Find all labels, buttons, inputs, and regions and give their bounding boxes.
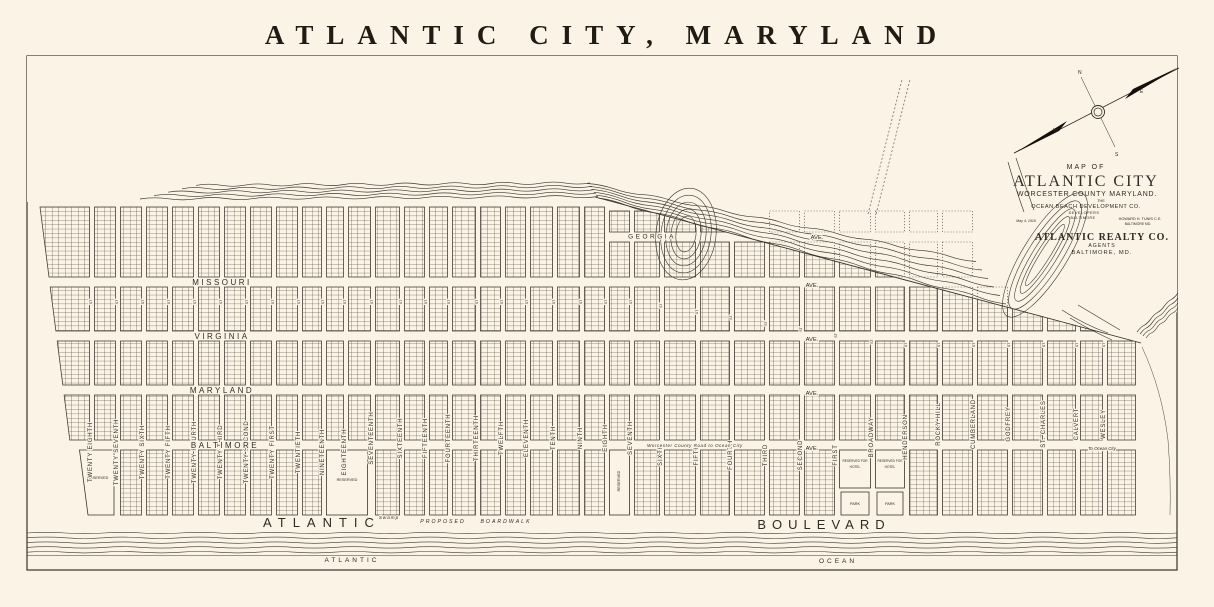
credit-map-of: MAP OF: [1067, 164, 1106, 171]
street-suffix-label: ST: [1102, 342, 1106, 347]
street-name-label: TWENTY SIXTH: [140, 425, 146, 479]
street-name-label: SIXTEENTH: [398, 418, 404, 459]
city-block: [277, 207, 298, 277]
city-block: [199, 450, 220, 515]
street-name-label: TENTH: [551, 426, 557, 450]
street-name-label: TWELFTH: [499, 421, 505, 455]
street-suffix-label: ST: [447, 299, 451, 304]
city-block: [1081, 341, 1103, 385]
city-block: [805, 341, 835, 385]
street-suffix-label: ST: [1075, 342, 1079, 347]
city-block: [251, 341, 272, 385]
beach-layer: [27, 532, 1177, 555]
beach-wave-line: [27, 552, 1177, 553]
city-block: [1108, 341, 1136, 385]
city-block: [303, 207, 322, 277]
city-block: [585, 341, 605, 385]
street-suffix-label: ST: [604, 299, 608, 304]
city-block: [665, 450, 696, 515]
city-block: [327, 287, 344, 331]
city-block: [735, 450, 765, 515]
street-suffix-label: ST: [115, 299, 119, 304]
city-block: [943, 341, 973, 385]
street-suffix-label: ST: [659, 303, 663, 308]
city-block: [277, 450, 298, 515]
street-suffix-label: ST: [972, 342, 976, 347]
street-name-label: BROADWAY: [869, 417, 875, 458]
city-block: [453, 207, 476, 277]
city-block: [64, 395, 89, 440]
city-block: [430, 341, 448, 385]
street-name-label: TWENTY FIRST: [270, 425, 276, 479]
city-block: [635, 395, 660, 440]
street-suffix-label: ST: [764, 320, 768, 325]
credit-company: OCEAN BEACH DEVELOPMENT CO.: [1031, 204, 1140, 210]
city-block: [147, 287, 168, 331]
city-block: [225, 207, 246, 277]
city-block: [453, 450, 476, 515]
street-name-label: EIGHTH: [603, 424, 609, 451]
street-name-label: SEVENTEENTH: [369, 411, 375, 464]
city-block: [585, 395, 605, 440]
street-suffix-label: ST: [525, 299, 529, 304]
city-block: [95, 341, 116, 385]
park-label: PARK: [850, 502, 861, 506]
proposed-label: PROPOSED: [420, 519, 465, 525]
city-block: [277, 341, 298, 385]
city-block: [95, 207, 116, 277]
city-block: [481, 450, 501, 515]
city-block: [481, 341, 501, 385]
street-suffix-label: ST: [424, 299, 428, 304]
city-block: [840, 341, 871, 385]
city-block: [701, 287, 730, 331]
city-block: [121, 341, 142, 385]
city-block: [147, 450, 168, 515]
city-block: [1013, 395, 1043, 440]
city-block: [173, 450, 194, 515]
city-block: [1081, 450, 1103, 515]
city-block: [978, 341, 1008, 385]
city-block: [349, 395, 371, 440]
city-block: [147, 341, 168, 385]
city-block: [430, 450, 448, 515]
compass-n: N: [1078, 70, 1082, 76]
hotel-reserved-label: RESERVED FOR: [842, 459, 868, 463]
city-block: [665, 287, 696, 331]
atlantic-boulevard-right-label: BOULEVARD: [757, 517, 890, 532]
credit-agent-city: BALTIMORE, MD.: [1072, 250, 1133, 256]
credit-company-city: BALTIMORE: [1070, 216, 1095, 220]
city-block: [531, 395, 553, 440]
city-block: [405, 341, 425, 385]
street-name-label: CUMBERLAND: [971, 399, 977, 449]
city-block: [876, 395, 905, 440]
city-block: [910, 450, 938, 515]
city-block: [1108, 450, 1136, 515]
beach-wave-line: [27, 542, 1177, 543]
city-block: [531, 207, 553, 277]
street-name-label: TWENTIETH: [296, 431, 302, 473]
city-block: [121, 395, 142, 440]
avenue-name-label: BALTIMORE: [191, 441, 259, 450]
city-block: [173, 207, 194, 277]
street-name-label: ST. CHARLES: [1041, 400, 1047, 447]
city-block: [558, 395, 580, 440]
street-suffix-label: ST: [141, 299, 145, 304]
city-block: [173, 287, 194, 331]
city-block: [225, 450, 246, 515]
city-block: [735, 341, 765, 385]
city-block: [327, 341, 344, 385]
reserved-block: [80, 450, 115, 515]
city-block: [701, 341, 730, 385]
city-block: [173, 395, 194, 440]
city-block: [735, 287, 765, 331]
street-suffix-label: ST: [245, 299, 249, 304]
city-block: [327, 207, 344, 277]
street-name-label: FIFTEENTH: [423, 418, 429, 458]
ocean-left-label: ATLANTIC: [325, 557, 380, 564]
city-block: [978, 395, 1008, 440]
city-block: [770, 450, 800, 515]
city-block: [701, 242, 730, 277]
street-name-label: THIRTEENTH: [474, 415, 480, 461]
city-block: [585, 207, 605, 277]
beach-wave-line: [27, 532, 1177, 533]
city-block: [805, 450, 835, 515]
city-block: [405, 287, 425, 331]
credit-county: WORCESTER COUNTY MARYLAND.: [1017, 191, 1157, 198]
park-label: PARK: [885, 502, 896, 506]
city-block: [635, 211, 660, 232]
city-block: [95, 395, 116, 440]
city-block: [840, 395, 871, 440]
city-block: [376, 450, 400, 515]
street-suffix-label: ST: [870, 338, 874, 343]
city-block: [303, 287, 322, 331]
city-block: [453, 341, 476, 385]
city-block: [121, 450, 142, 515]
avenue-suffix-label: AVE.: [806, 391, 819, 397]
credit-date: May 4, 1916: [1016, 219, 1036, 223]
reserved-label: RESERVED: [617, 470, 621, 491]
city-block: [1048, 341, 1076, 385]
avenue-suffix-label: AVE.: [806, 446, 819, 452]
street-name-label: WESLEY: [1101, 409, 1107, 439]
city-block: [665, 242, 696, 277]
street-suffix-label: ST: [193, 299, 197, 304]
avenue-name-label: MARYLAND: [190, 386, 254, 395]
city-block: [349, 341, 371, 385]
street-suffix-label: ST: [1042, 342, 1046, 347]
city-block: [770, 287, 800, 331]
street-suffix-label: ST: [271, 299, 275, 304]
city-block: [876, 287, 905, 331]
compass-w: W: [1053, 128, 1058, 134]
street-suffix-label: ST: [799, 326, 803, 331]
city-block: [199, 287, 220, 331]
city-block: [558, 341, 580, 385]
hotel-label: HOTEL: [850, 465, 861, 469]
street-name-label: TWENTY THIRD: [218, 425, 224, 480]
city-block: [327, 395, 344, 440]
city-block: [610, 395, 630, 440]
city-block: [225, 341, 246, 385]
ocean-right-label: OCEAN: [819, 558, 857, 565]
city-block: [1048, 395, 1076, 440]
street-suffix-label: ST: [834, 332, 838, 337]
city-block: [376, 395, 400, 440]
city-block: [610, 287, 630, 331]
street-suffix-label: ST: [579, 299, 583, 304]
street-name-label: GODFREY: [1006, 406, 1012, 441]
city-block: [251, 395, 272, 440]
city-block: [610, 211, 630, 232]
city-block: [50, 287, 89, 331]
city-block: [1013, 450, 1043, 515]
street-name-label: CALVERT: [1074, 408, 1080, 441]
avenue-suffix-label: AVE.: [811, 235, 824, 241]
city-block: [506, 207, 526, 277]
street-name-label: ELEVENTH: [524, 419, 530, 457]
city-block: [376, 287, 400, 331]
city-block: [430, 207, 448, 277]
county-road-note: Worcester County Road to Ocean City: [647, 443, 743, 448]
city-block: [251, 207, 272, 277]
street-name-label: TWENTY FOURTH: [192, 421, 198, 483]
city-block: [943, 395, 973, 440]
street-suffix-label: ST: [475, 299, 479, 304]
city-block: [770, 395, 800, 440]
city-block: [199, 207, 220, 277]
street-suffix-label: ST: [399, 299, 403, 304]
street-name-label: TWENTY SECOND: [244, 421, 250, 484]
city-block: [430, 287, 448, 331]
street-name-label: NINETEENTH: [320, 429, 326, 475]
credit-the: THE: [1097, 199, 1105, 203]
city-block: [506, 341, 526, 385]
city-block: [585, 450, 605, 515]
city-block: [1048, 450, 1076, 515]
city-block: [251, 450, 272, 515]
city-block: [251, 287, 272, 331]
city-block: [303, 395, 322, 440]
city-block: [405, 207, 425, 277]
reserved-label: RESERVED: [337, 478, 358, 482]
credit-engineer-city: BALTIMORE MD.: [1125, 222, 1152, 226]
city-block: [405, 395, 425, 440]
street-suffix-label: ST: [343, 299, 347, 304]
credit-engineer: HOWARD H. TUNIS C.E.: [1119, 217, 1162, 221]
city-block: [531, 287, 553, 331]
city-block: [225, 395, 246, 440]
city-block: [376, 207, 400, 277]
city-block: [701, 450, 730, 515]
city-block: [173, 341, 194, 385]
city-block: [303, 341, 322, 385]
city-block: [147, 207, 168, 277]
street-suffix-label: ST: [219, 299, 223, 304]
city-block: [558, 450, 580, 515]
street-name-label: SECOND: [798, 440, 804, 470]
avenue-suffix-label: AVE.: [806, 337, 819, 343]
street-suffix-label: ST: [937, 342, 941, 347]
city-block: [453, 395, 476, 440]
avenue-name-label: MISSOURI: [192, 278, 252, 287]
street-suffix-label: ST: [321, 299, 325, 304]
street-suffix-label: ST: [629, 299, 633, 304]
city-block: [506, 395, 526, 440]
city-block: [635, 341, 660, 385]
map-sheet: ATLANTIC CITY, MARYLAND MAINLAND SINEPUX…: [0, 0, 1214, 607]
city-block: [735, 395, 765, 440]
street-suffix-label: ST: [89, 299, 93, 304]
city-block: [805, 287, 835, 331]
street-suffix-label: ST: [729, 314, 733, 319]
city-block: [770, 341, 800, 385]
street-suffix-label: ST: [167, 299, 171, 304]
street-name-label: FOURTEENTH: [446, 414, 452, 463]
city-block: [349, 207, 371, 277]
street-suffix-label: ST: [370, 299, 374, 304]
city-block: [610, 242, 630, 277]
city-block: [1081, 395, 1103, 440]
street-suffix-label: ST: [297, 299, 301, 304]
street-name-label: NINTH: [578, 427, 584, 449]
city-block: [665, 341, 696, 385]
city-block: [635, 450, 660, 515]
city-block: [665, 395, 696, 440]
city-block: [735, 242, 765, 277]
city-block: [506, 287, 526, 331]
street-name-label: TWENTY EIGHTH: [88, 422, 94, 482]
city-block: [303, 450, 322, 515]
map-canvas: MAINLAND SINEPUXENT BAY RESERVED FORHOTE…: [0, 0, 1214, 607]
street-name-label: TWENTY SEVENTH: [114, 419, 120, 485]
city-block: [585, 287, 605, 331]
boardwalk-label: BOARDWALK: [480, 519, 531, 525]
atlantic-boulevard-left-label: ATLANTIC: [263, 515, 381, 530]
city-block: [531, 341, 553, 385]
city-block: [531, 450, 553, 515]
reserved-block: [840, 450, 871, 488]
beach-wave-line: [27, 537, 1177, 538]
city-block: [121, 287, 142, 331]
city-block: [1013, 341, 1043, 385]
city-block: [1108, 395, 1136, 440]
city-block: [121, 207, 142, 277]
city-block: [840, 287, 871, 331]
city-block: [943, 450, 973, 515]
city-block: [430, 395, 448, 440]
street-name-label: HENDERSON: [903, 414, 909, 460]
street-name-label: EIGHTEENTH: [342, 429, 348, 476]
credit-developers: DEVELOPERS: [1069, 211, 1100, 215]
street-suffix-label: ST: [1007, 342, 1011, 347]
avenue-name-label: VIRGINIA: [194, 332, 249, 341]
city-block: [147, 395, 168, 440]
reserved-block: [876, 450, 905, 488]
street-name-label: SEVENTH: [628, 421, 634, 455]
city-block: [40, 207, 90, 277]
street-suffix-label: ST: [904, 342, 908, 347]
city-block: [199, 341, 220, 385]
city-block: [481, 287, 501, 331]
beach-wave-line: [27, 547, 1177, 548]
east-beach-edge: [1142, 347, 1170, 515]
compass-hub-outer: [1092, 106, 1105, 119]
city-block: [558, 287, 580, 331]
street-name-label: ROCKY HILL: [936, 402, 942, 446]
city-block: [910, 341, 938, 385]
city-block: [453, 287, 476, 331]
city-block: [701, 395, 730, 440]
city-block: [558, 207, 580, 277]
hotel-reserved-label: RESERVED FOR: [877, 459, 903, 463]
city-block: [876, 341, 905, 385]
city-block: [277, 395, 298, 440]
city-block: [349, 287, 371, 331]
city-block: [277, 287, 298, 331]
city-block: [635, 287, 660, 331]
street-name-label: FIRST: [833, 444, 839, 465]
street-suffix-label: ST: [552, 299, 556, 304]
city-block: [506, 450, 526, 515]
credit-agent: ATLANTIC REALTY CO.: [1035, 232, 1169, 243]
avenue-suffix-label: AVE.: [806, 283, 819, 289]
avenue-name-label: GEORGIA: [628, 234, 676, 241]
city-block: [199, 395, 220, 440]
city-block: [635, 242, 660, 277]
credit-city: ATLANTIC CITY: [1013, 173, 1159, 190]
street-name-label: THIRD: [763, 444, 769, 466]
city-block: [910, 287, 938, 331]
city-block: [57, 341, 89, 385]
credit-agents: AGENTS: [1088, 243, 1115, 249]
city-block: [376, 341, 400, 385]
city-block: [910, 395, 938, 440]
city-block: [978, 450, 1008, 515]
city-block: [610, 341, 630, 385]
street-suffix-label: ST: [695, 309, 699, 314]
city-block: [805, 395, 835, 440]
swamp-label: Swamp: [379, 515, 399, 520]
city-block: [405, 450, 425, 515]
hotel-label: HOTEL: [885, 465, 896, 469]
city-block: [481, 395, 501, 440]
city-block: [481, 207, 501, 277]
street-suffix-label: ST: [500, 299, 504, 304]
city-block: [225, 287, 246, 331]
city-block: [95, 287, 116, 331]
to-ocean-city-note: To Ocean City: [1088, 446, 1116, 451]
street-name-label: TWENTY FIFTH: [166, 425, 172, 478]
